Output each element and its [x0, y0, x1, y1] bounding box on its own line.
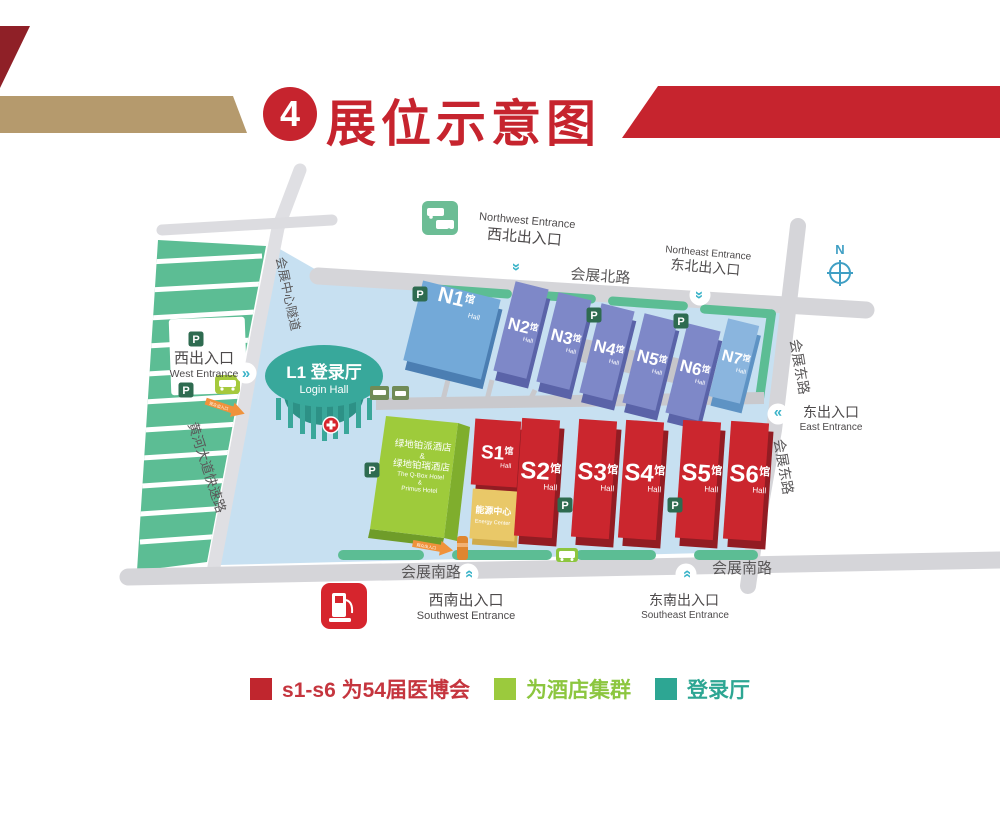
- hall-s3: S3馆 Hall: [570, 419, 622, 548]
- compass: N: [827, 242, 853, 286]
- parking-icon: P: [587, 308, 602, 323]
- southwest-entrance-en: Southwest Entrance: [417, 610, 515, 622]
- login-hall-title: L1 登录厅: [286, 362, 362, 382]
- svg-text:P: P: [182, 385, 189, 397]
- hall-sub: Hall: [500, 462, 512, 470]
- east-entrance-marker: »: [768, 404, 789, 425]
- svg-text:»: »: [242, 365, 250, 382]
- svg-text:P: P: [561, 500, 568, 512]
- login-hall-subtitle: Login Hall: [300, 384, 349, 396]
- road-label-south-right: 会展南路: [712, 560, 772, 577]
- east-entrance-zh: 东出入口: [803, 404, 859, 420]
- parking-icon: P: [179, 383, 194, 398]
- bus-stop-icon: [556, 548, 578, 562]
- red-ribbon-decoration: [612, 86, 1000, 138]
- hall-s2: S2馆 Hall: [513, 418, 565, 547]
- section-number-badge: 4: [263, 87, 317, 141]
- facility-icon-2: [392, 386, 409, 400]
- parking-icon: P: [189, 332, 204, 347]
- parking-icon: P: [674, 314, 689, 329]
- svg-text:»: »: [508, 263, 525, 271]
- hotel-cluster: 绿地铂派酒店 & 绿地铂瑞酒店 The Q-Box Hotel & Primus…: [368, 416, 470, 547]
- legend: s1-s6 为54届医博会 为酒店集群 登录厅: [0, 674, 1000, 704]
- hall-sub: Hall: [600, 483, 615, 493]
- first-aid-icon: [323, 417, 339, 433]
- svg-text:P: P: [677, 316, 684, 328]
- northwest-entrance-marker: »: [507, 257, 528, 278]
- legend-label-login-hall: 登录厅: [687, 674, 750, 704]
- traffic-cone-icon: [457, 536, 468, 560]
- legend-label-hotels: 为酒店集群: [526, 674, 631, 704]
- legend-item-login-hall: 登录厅: [655, 674, 750, 704]
- hall-sub: Hall: [704, 484, 719, 494]
- parking-icon: P: [413, 287, 428, 302]
- energy-center: 能源中心 Energy Center: [469, 488, 521, 547]
- tan-ribbon-decoration: [0, 96, 247, 133]
- hall-sub: Hall: [543, 482, 558, 492]
- southwest-entrance-zh: 西南出入口: [428, 592, 503, 609]
- road-label-south-left: 会展南路: [401, 564, 461, 581]
- west-entrance-marker: »: [236, 363, 257, 384]
- section-number: 4: [280, 93, 300, 135]
- road-top-stub: [162, 220, 332, 230]
- hall-s4: S4馆 Hall: [617, 420, 669, 549]
- legend-item-expo-halls: s1-s6 为54届医博会: [250, 674, 470, 704]
- northwest-entrance-zh: 西北出入口: [486, 226, 562, 249]
- svg-text:P: P: [671, 500, 678, 512]
- page-title: 展位示意图: [326, 84, 626, 156]
- parking-icon: P: [365, 463, 380, 478]
- gas-station-icon: [321, 583, 367, 629]
- road-label-east-upper: 会展东路: [787, 338, 812, 396]
- southeast-entrance-en: Southeast Entrance: [641, 610, 729, 621]
- south-east-marker: »: [676, 564, 697, 585]
- legend-swatch-teal: [655, 678, 677, 700]
- legend-swatch-red: [250, 678, 272, 700]
- compass-n: N: [835, 242, 844, 257]
- west-entrance-zh: 西出入口: [174, 350, 234, 367]
- hall-s6: S6馆 Hall: [722, 421, 774, 550]
- svg-text:P: P: [192, 334, 199, 346]
- svg-text:P: P: [590, 310, 597, 322]
- parking-icon: P: [668, 498, 683, 513]
- svg-text:»: »: [691, 291, 708, 299]
- svg-text:P: P: [368, 465, 375, 477]
- svg-text:»: »: [678, 570, 695, 578]
- hall-sub: Hall: [752, 485, 767, 495]
- legend-item-hotels: 为酒店集群: [494, 674, 631, 704]
- facility-icon-1: [370, 386, 389, 400]
- svg-text:»: »: [774, 405, 782, 422]
- east-entrance-en: East Entrance: [800, 422, 863, 433]
- legend-label-expo-halls: s1-s6 为54届医博会: [282, 674, 470, 704]
- west-entrance-en: West Entrance: [170, 368, 239, 380]
- svg-text:»: »: [460, 570, 477, 578]
- svg-text:P: P: [416, 289, 423, 301]
- hall-s5: S5馆 Hall: [674, 420, 726, 549]
- shuttle-bus-icon: [422, 201, 458, 235]
- parking-icon: P: [558, 498, 573, 513]
- hall-sub: Hall: [647, 484, 662, 494]
- legend-swatch-green: [494, 678, 516, 700]
- southeast-entrance-zh: 东南出入口: [649, 592, 719, 608]
- northeast-entrance-marker: »: [690, 285, 711, 306]
